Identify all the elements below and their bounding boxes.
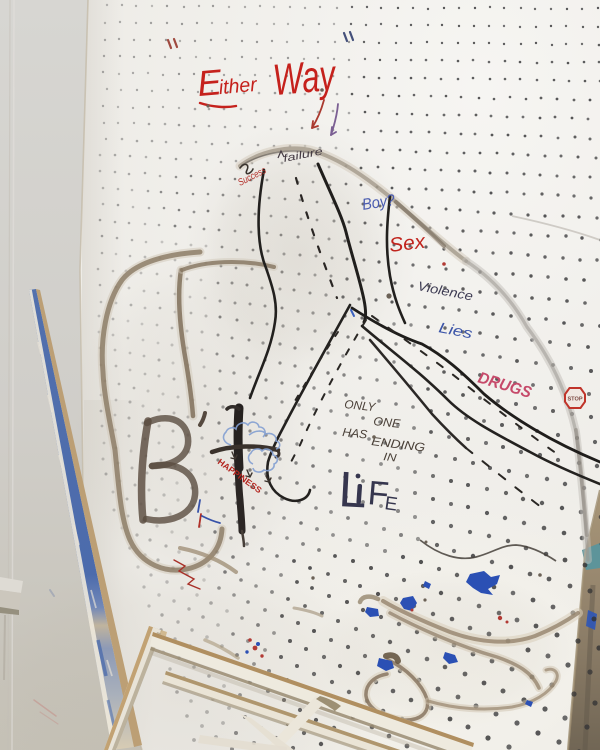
svg-text:Sex: Sex: [388, 231, 427, 257]
svg-text:L: L: [337, 461, 368, 518]
svg-text:ither: ither: [218, 74, 259, 99]
svg-text:IN: IN: [383, 451, 397, 465]
svg-text:STOP: STOP: [567, 396, 582, 402]
svg-text:HAS: HAS: [342, 425, 368, 442]
svg-text:Way: Way: [271, 51, 339, 105]
svg-text:ONE: ONE: [373, 414, 402, 431]
